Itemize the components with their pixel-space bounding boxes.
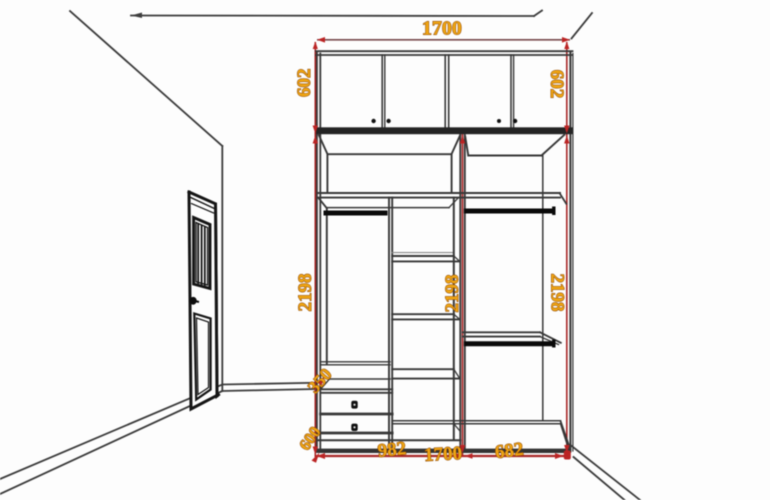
svg-text:682: 682 [494,439,525,463]
svg-text:1700: 1700 [422,18,462,40]
svg-text:2198: 2198 [547,274,568,312]
svg-text:2198: 2198 [295,274,316,312]
svg-text:2198: 2198 [442,275,463,313]
svg-text:602: 602 [546,70,567,99]
svg-text:982: 982 [377,438,408,462]
svg-text:602: 602 [294,68,315,97]
svg-text:1700: 1700 [424,443,463,466]
